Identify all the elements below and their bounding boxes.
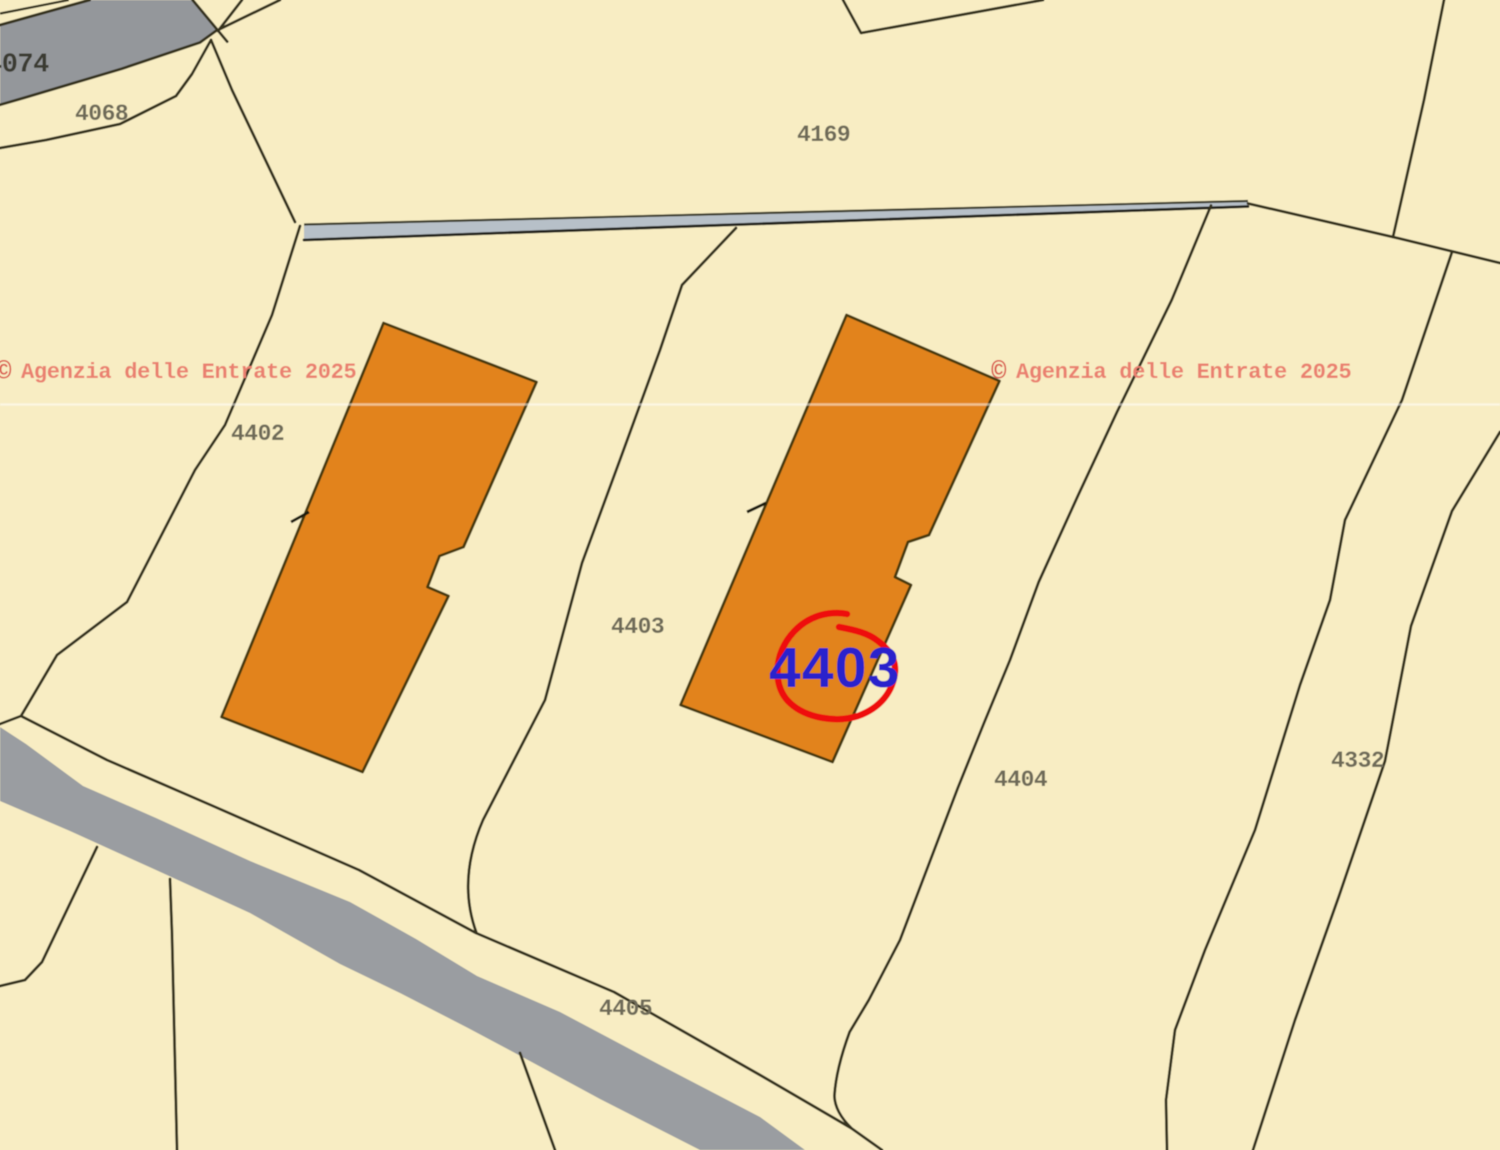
svg-text:4403: 4403 xyxy=(769,636,901,700)
svg-text:Agenzia delle Entrate 2025: Agenzia delle Entrate 2025 xyxy=(21,360,357,385)
svg-text:4405: 4405 xyxy=(599,996,652,1022)
svg-text:4074: 4074 xyxy=(0,51,49,81)
svg-text:4068: 4068 xyxy=(75,101,128,127)
svg-text:4332: 4332 xyxy=(1331,748,1384,774)
svg-text:Agenzia delle Entrate 2025: Agenzia delle Entrate 2025 xyxy=(1016,360,1352,385)
svg-text:©: © xyxy=(0,357,12,387)
svg-text:4402: 4402 xyxy=(231,421,284,447)
svg-text:4404: 4404 xyxy=(994,767,1048,793)
svg-text:4403: 4403 xyxy=(611,614,664,640)
svg-text:4169: 4169 xyxy=(797,122,850,148)
svg-text:©: © xyxy=(991,357,1007,387)
